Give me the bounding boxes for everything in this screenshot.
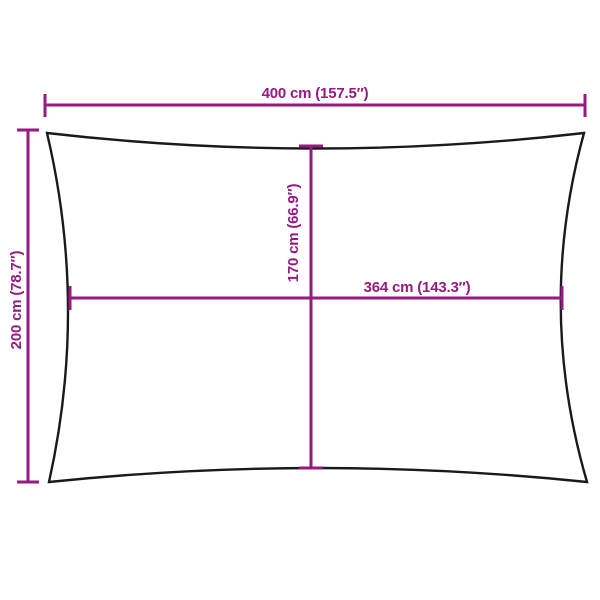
dim-overall-height: 200 cm (78.7″) — [8, 130, 39, 482]
dim-overall-width-label: 400 cm (157.5″) — [262, 85, 369, 102]
dim-inner-height: 170 cm (66.9″) — [285, 146, 323, 468]
product-dimension-diagram: 400 cm (157.5″) 200 cm (78.7″) 170 cm (6… — [0, 0, 600, 600]
dim-overall-width: 400 cm (157.5″) — [45, 85, 585, 117]
dimension-diagram-canvas: 400 cm (157.5″) 200 cm (78.7″) 170 cm (6… — [0, 0, 600, 600]
sail-outline — [47, 133, 587, 482]
dim-inner-height-label: 170 cm (66.9″) — [285, 183, 302, 282]
dim-overall-height-label: 200 cm (78.7″) — [8, 250, 25, 349]
dim-inner-width-label: 364 cm (143.3″) — [364, 279, 471, 296]
dim-inner-width: 364 cm (143.3″) — [70, 279, 562, 310]
